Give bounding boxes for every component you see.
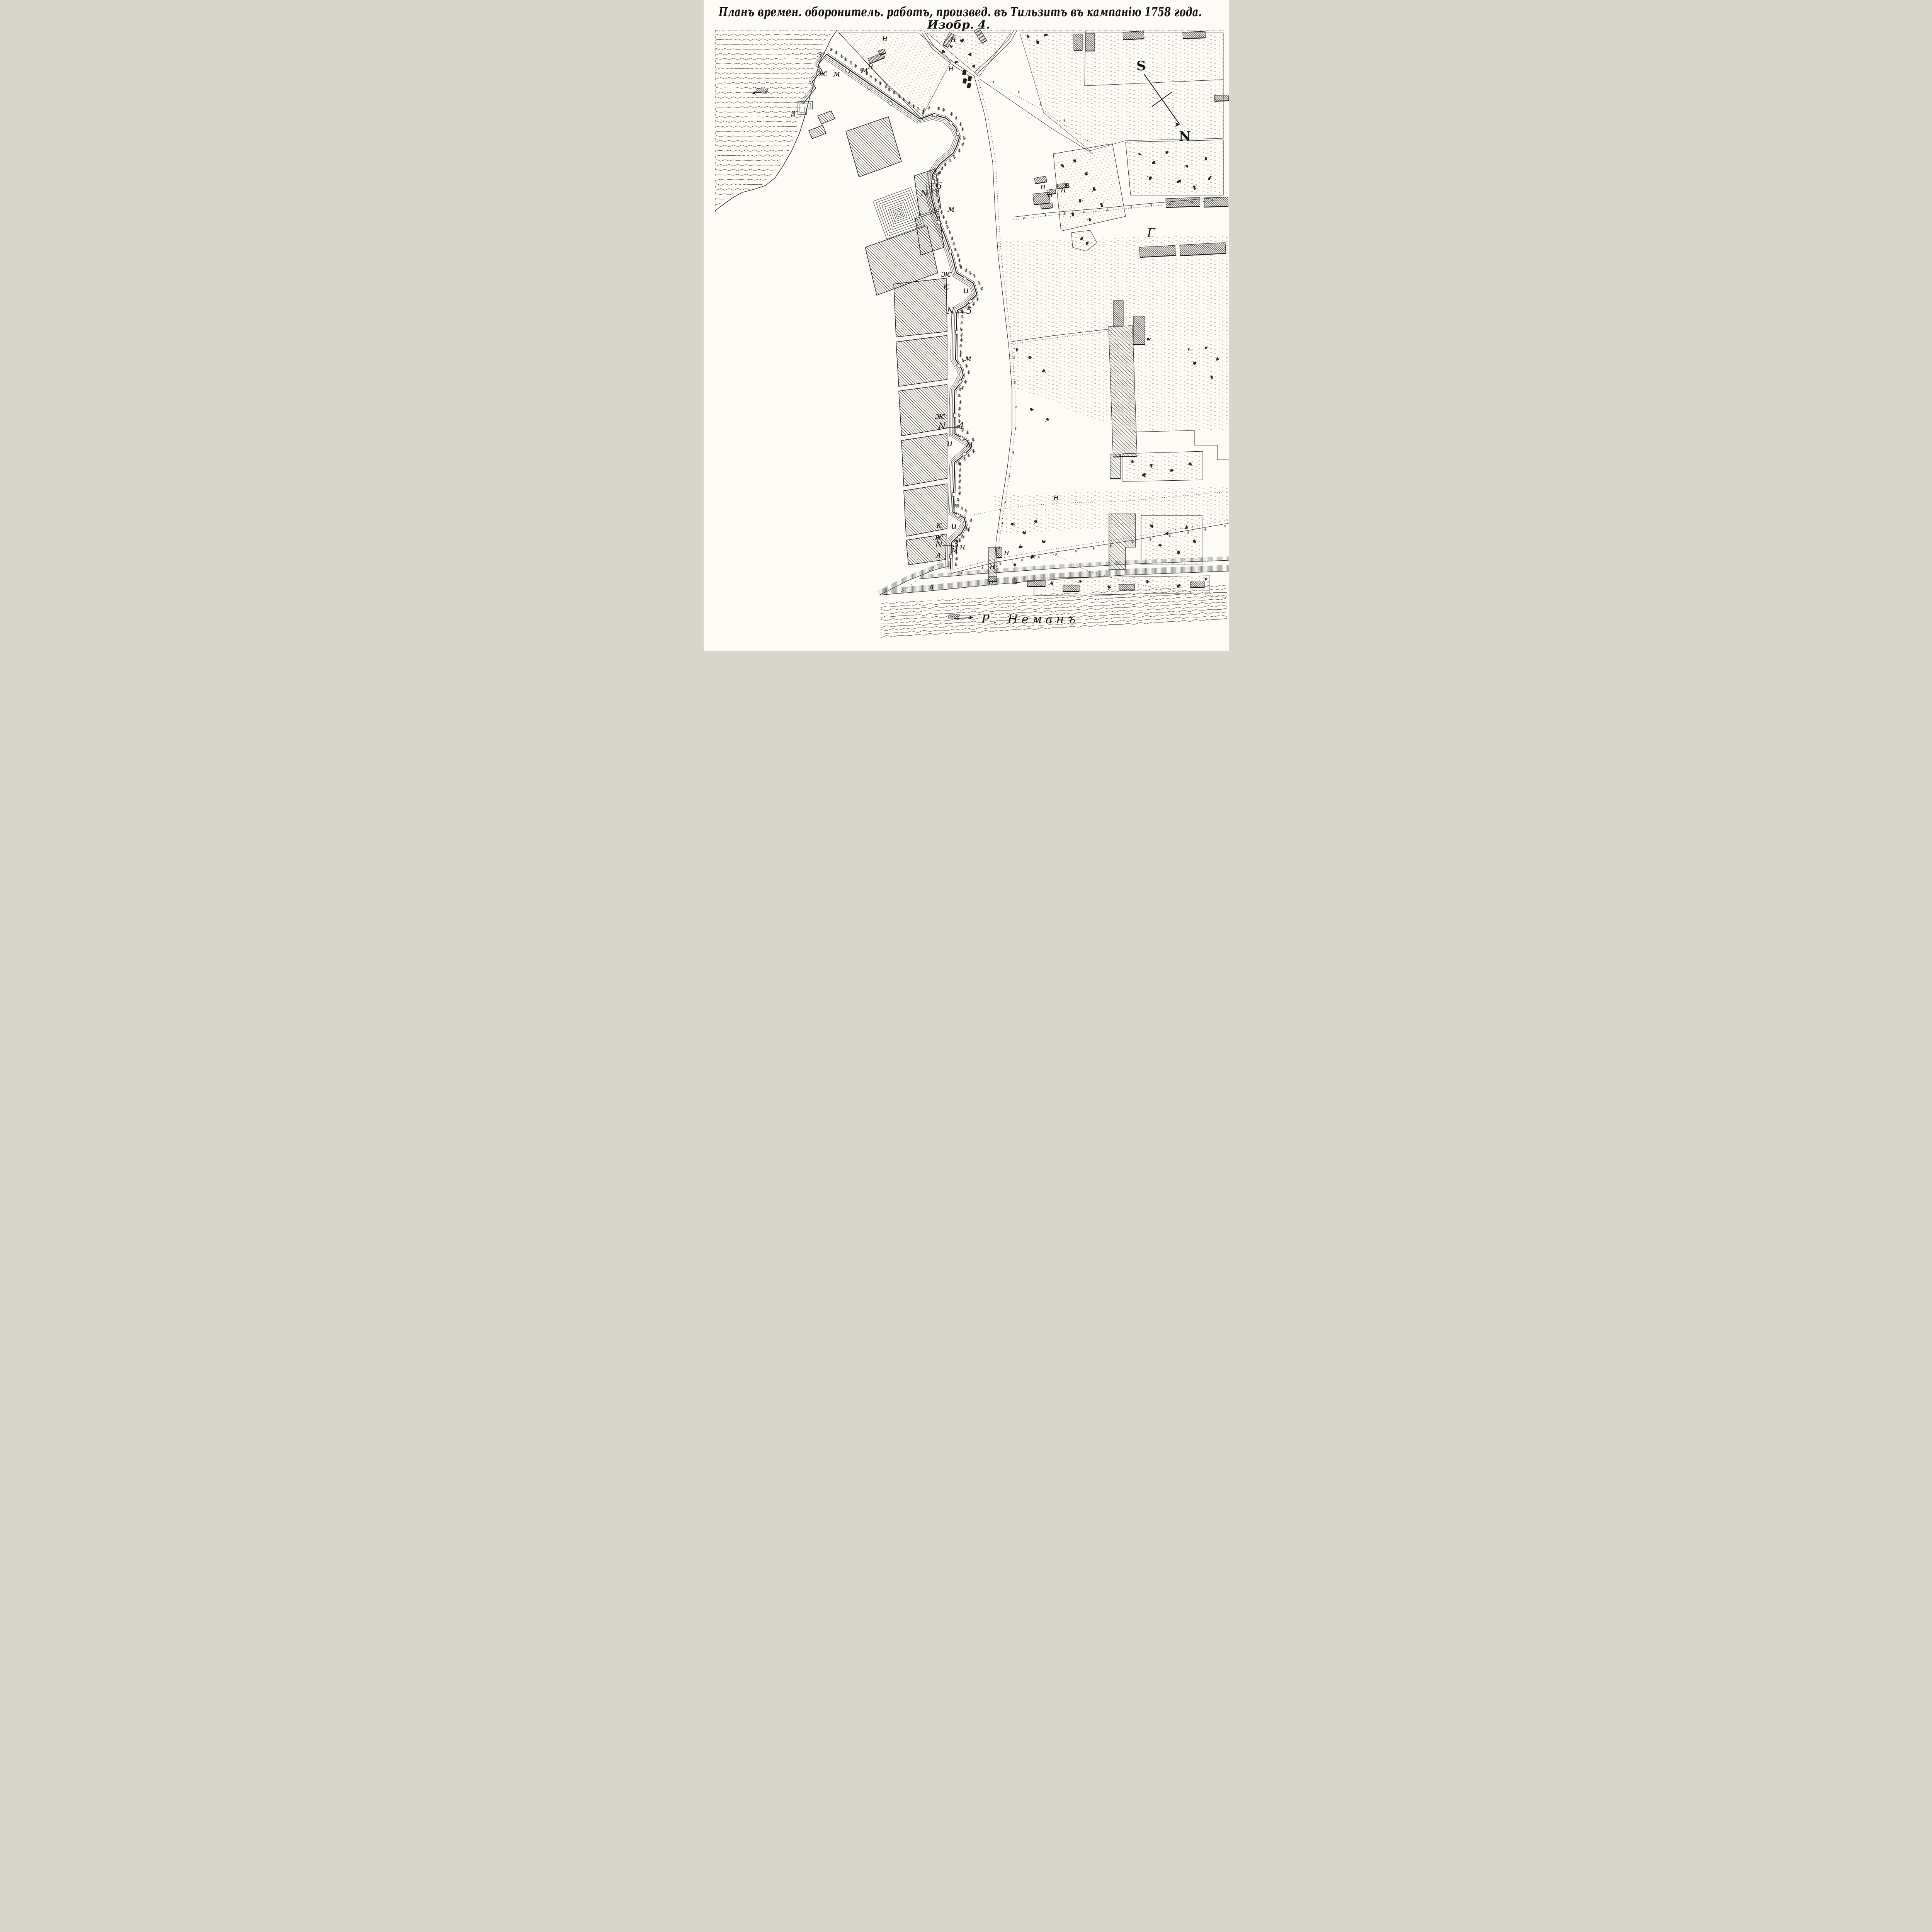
label-no: N [938, 422, 946, 431]
label-g: Г [1146, 226, 1156, 240]
label-n: н [882, 34, 888, 43]
building [1214, 95, 1229, 101]
label-n: н [950, 34, 956, 44]
building [1123, 31, 1144, 40]
label-n: н [1003, 548, 1009, 558]
label-no: N [935, 540, 943, 549]
compass-south-label: S [1136, 58, 1146, 74]
label-n: н [1047, 190, 1053, 199]
label-l: л [928, 582, 934, 592]
label-l: л [935, 550, 940, 560]
map-canvas: ззжжжжммммммнннннннннннннккиииллГN6N5N4N… [704, 0, 1229, 651]
building [1109, 326, 1137, 457]
building [1063, 585, 1079, 592]
building [1074, 34, 1082, 50]
building [1183, 31, 1206, 39]
building [1166, 197, 1200, 207]
building [1190, 582, 1204, 587]
label-m: м [966, 439, 973, 449]
building [1119, 584, 1134, 590]
map-title-line2: Изобр. 4. [927, 18, 990, 32]
building [1180, 243, 1226, 256]
label-n: н [988, 578, 993, 588]
label-n: н [1040, 182, 1046, 192]
label-z: з [791, 107, 796, 118]
label-no5: 5 [966, 305, 972, 316]
label-no3: 3 [953, 539, 959, 549]
label-i: и [947, 438, 952, 449]
label-m: м [833, 69, 840, 79]
label-n: н [1053, 493, 1059, 502]
label-no4: 4 [958, 420, 964, 431]
building [1133, 316, 1145, 345]
label-n: н [964, 524, 970, 534]
building [1085, 33, 1095, 51]
label-n: н [959, 542, 965, 552]
label-n: н [948, 64, 954, 73]
label-k: к [943, 281, 949, 292]
label-m: м [861, 65, 867, 75]
label-no: N [920, 189, 928, 199]
label-no: N [946, 306, 954, 316]
compass-north-label: N [1179, 129, 1191, 144]
building [1041, 203, 1053, 209]
label-zh: ж [941, 269, 951, 279]
label-k: к [936, 520, 942, 531]
building [1204, 197, 1228, 207]
map-page: ззжжжжммммммнннннннннннннккиииллГN6N5N4N… [704, 0, 1229, 651]
label-zh: ж [817, 68, 827, 78]
label-zh: ж [935, 411, 945, 421]
building [997, 548, 1002, 558]
label-no6: 6 [936, 180, 942, 191]
label-m: м [964, 354, 971, 363]
label-n: н [867, 61, 873, 71]
building [1113, 301, 1123, 326]
label-i: и [963, 285, 969, 296]
town-blocks [809, 111, 947, 565]
label-m: м [947, 204, 954, 214]
building [1110, 454, 1121, 479]
label-i: и [951, 520, 957, 531]
label-z: з [817, 49, 822, 60]
river-neman-label: Р. Неманъ [981, 612, 1078, 626]
map-title-line1: Планъ времен. оборонитель. работъ, произ… [718, 4, 1202, 19]
label-n: н [989, 562, 995, 571]
label-n: н [1060, 185, 1066, 195]
building [1139, 245, 1175, 257]
